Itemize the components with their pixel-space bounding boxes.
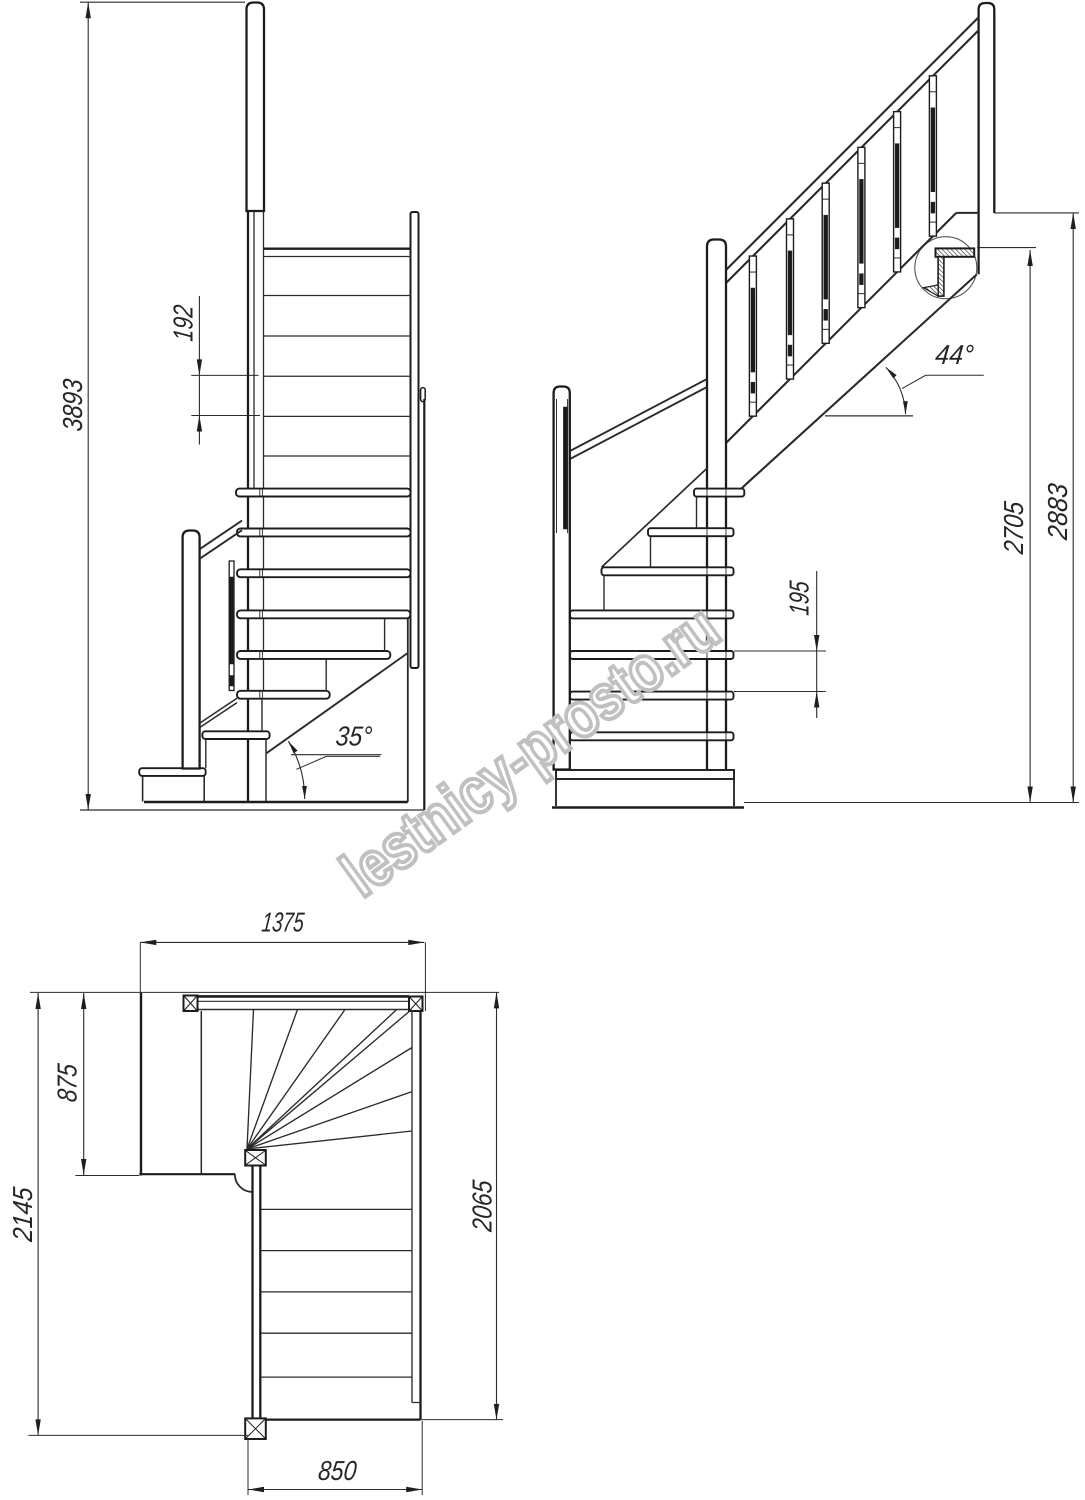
svg-text:44°: 44° — [934, 339, 975, 370]
svg-text:2065: 2065 — [466, 1178, 497, 1234]
svg-text:2883: 2883 — [1042, 481, 1073, 542]
svg-text:850: 850 — [317, 1455, 359, 1486]
svg-text:2145: 2145 — [7, 1185, 38, 1244]
svg-text:192: 192 — [167, 303, 198, 342]
svg-text:1375: 1375 — [260, 907, 306, 938]
svg-text:3893: 3893 — [57, 377, 88, 433]
svg-text:195: 195 — [783, 579, 814, 617]
svg-text:875: 875 — [51, 1062, 82, 1104]
svg-text:35°: 35° — [334, 721, 373, 752]
svg-text:2705: 2705 — [998, 499, 1029, 556]
